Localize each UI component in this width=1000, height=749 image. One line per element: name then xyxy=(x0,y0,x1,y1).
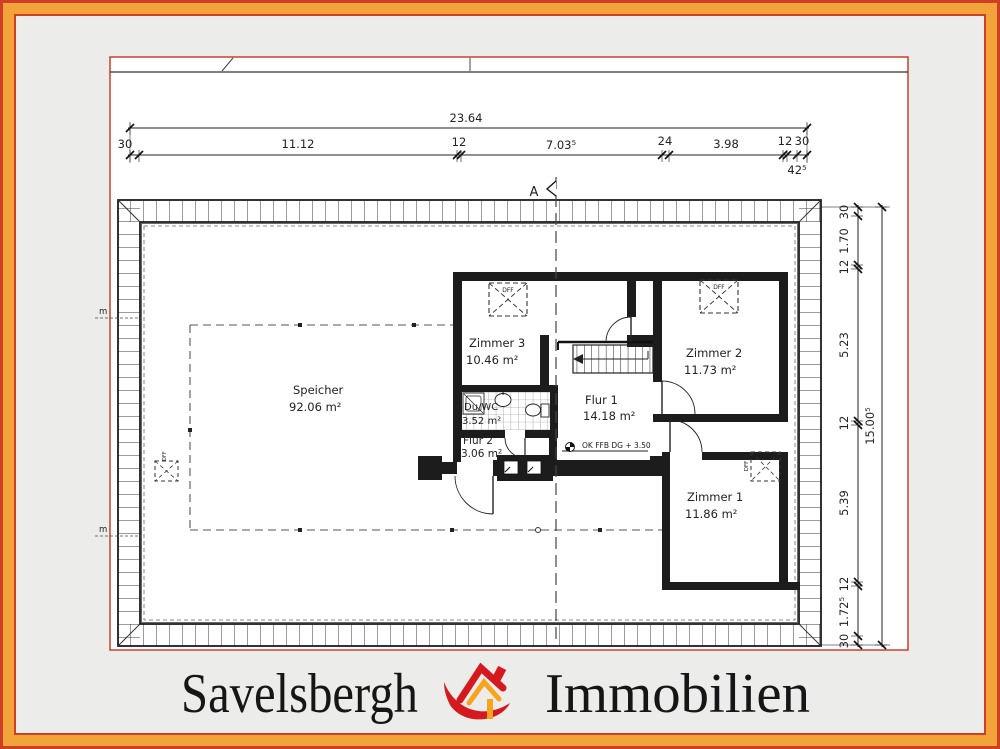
roof-window-label: DFF xyxy=(744,461,750,472)
room-name-flur1: Flur 1 xyxy=(585,393,618,407)
room-name-zimmer3: Zimmer 3 xyxy=(469,336,525,350)
dim-seg: 1.70 xyxy=(837,228,851,254)
room-name-duwc: Du/WC xyxy=(464,402,498,413)
room-area-flur2: 3.06 m² xyxy=(461,448,502,460)
room-area-zimmer3: 10.46 m² xyxy=(466,353,518,367)
dim-seg: 12 xyxy=(452,135,467,149)
room-area-zimmer1: 11.86 m² xyxy=(685,507,737,521)
dim-seg: 1.72⁵ xyxy=(837,597,851,628)
room-name-flur2: Flur 2 xyxy=(463,435,493,447)
dim-seg: 30 xyxy=(118,137,133,151)
dim-seg: 12 xyxy=(837,577,851,592)
roof-window-label: DFF xyxy=(502,287,514,294)
dim-seg: 12 xyxy=(778,134,793,148)
dim-seg: 11.12 xyxy=(282,137,315,151)
brand-footer: Savelsbergh Immobilien xyxy=(181,663,810,725)
dim-seg: 30 xyxy=(795,134,810,148)
floor-plan-page: 23.64 30 11.12 12 7.03⁵ 24 3.98 12 30 42… xyxy=(0,0,1000,749)
dim-top-total: 23.64 xyxy=(450,111,483,125)
section-label: A xyxy=(530,185,539,200)
brand-name-right: Immobilien xyxy=(545,663,810,725)
dim-seg: 12 xyxy=(837,260,851,275)
floor-plan-drawing: 23.64 30 11.12 12 7.03⁵ 24 3.98 12 30 42… xyxy=(0,0,1000,749)
room-name-zimmer2: Zimmer 2 xyxy=(686,346,742,360)
floor-plan: DFF DFF DFF DFF A xyxy=(95,177,821,646)
roof-window-label: DFF xyxy=(713,284,725,291)
dim-seg: 12 xyxy=(837,416,851,431)
brand-name-left: Savelsbergh xyxy=(181,663,418,725)
roof-window-label: DFF xyxy=(162,451,168,461)
meter-mark-label: m xyxy=(99,307,107,317)
dim-sub: 42⁵ xyxy=(787,163,807,177)
dim-seg: 30 xyxy=(837,634,851,649)
dim-seg: 7.03⁵ xyxy=(546,138,577,152)
room-name-zimmer1: Zimmer 1 xyxy=(687,490,743,504)
dim-seg: 5.39 xyxy=(837,490,851,516)
dim-seg: 24 xyxy=(658,134,673,148)
room-area-zimmer2: 11.73 m² xyxy=(684,363,736,377)
dim-seg: 5.23 xyxy=(837,332,851,358)
dim-right-total: 15.00⁵ xyxy=(863,407,877,445)
room-name-speicher: Speicher xyxy=(293,383,344,397)
dim-seg: 30 xyxy=(837,205,851,220)
room-area-duwc: 3.52 m² xyxy=(462,416,501,427)
level-note: OK FFB DG + 3.50 xyxy=(582,441,651,450)
toilet-icon xyxy=(526,404,550,417)
dim-seg: 3.98 xyxy=(713,137,739,151)
room-area-flur1: 14.18 m² xyxy=(583,409,635,423)
meter-mark-label: m xyxy=(99,525,107,535)
room-area-speicher: 92.06 m² xyxy=(289,400,341,414)
